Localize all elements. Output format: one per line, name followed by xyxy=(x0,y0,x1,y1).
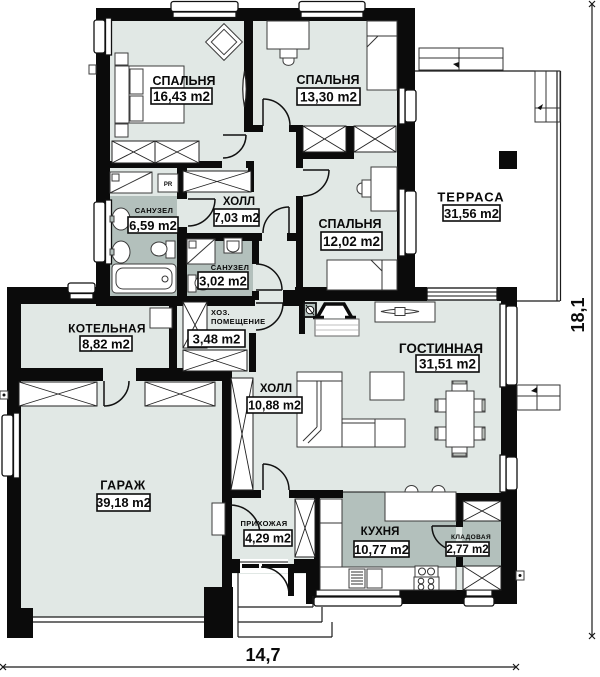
svg-text:КОТЕЛЬНАЯ: КОТЕЛЬНАЯ xyxy=(68,322,146,336)
svg-text:7,03 m2: 7,03 m2 xyxy=(214,211,260,225)
svg-text:13,30 m2: 13,30 m2 xyxy=(300,90,357,105)
svg-text:3,02 m2: 3,02 m2 xyxy=(199,274,247,289)
svg-text:12,02 m2: 12,02 m2 xyxy=(323,234,380,249)
svg-text:ХОЗ.: ХОЗ. xyxy=(211,308,230,317)
svg-text:ПОМЕЩЕНИЕ: ПОМЕЩЕНИЕ xyxy=(211,317,266,326)
svg-text:16,43 m2: 16,43 m2 xyxy=(153,89,210,104)
svg-text:10,77 m2: 10,77 m2 xyxy=(354,542,409,557)
svg-text:САНУЗЕЛ: САНУЗЕЛ xyxy=(211,263,250,272)
svg-text:10,88 m2: 10,88 m2 xyxy=(248,399,301,413)
svg-text:3,48 m2: 3,48 m2 xyxy=(193,332,241,347)
svg-text:8,82 m2: 8,82 m2 xyxy=(82,337,130,352)
svg-text:СПАЛЬНЯ: СПАЛЬНЯ xyxy=(319,217,382,231)
svg-text:КЛАДОВАЯ: КЛАДОВАЯ xyxy=(451,534,491,541)
svg-text:ПРИХОЖАЯ: ПРИХОЖАЯ xyxy=(240,519,287,528)
svg-text:31,51 m2: 31,51 m2 xyxy=(419,357,476,372)
svg-text:PR: PR xyxy=(164,182,173,188)
svg-text:14,7: 14,7 xyxy=(245,645,280,665)
svg-text:31,56 m2: 31,56 m2 xyxy=(444,206,499,221)
svg-text:2,77 m2: 2,77 m2 xyxy=(446,544,488,556)
svg-text:СПАЛЬНЯ: СПАЛЬНЯ xyxy=(153,74,216,88)
svg-text:СПАЛЬНЯ: СПАЛЬНЯ xyxy=(297,73,360,87)
svg-text:КУХНЯ: КУХНЯ xyxy=(361,526,400,538)
svg-text:39,18 m2: 39,18 m2 xyxy=(96,495,151,510)
svg-text:ТЕРРАСА: ТЕРРАСА xyxy=(437,190,504,205)
svg-text:18,1: 18,1 xyxy=(568,297,588,332)
svg-text:ГАРАЖ: ГАРАЖ xyxy=(100,479,146,493)
svg-text:САНУЗЕЛ: САНУЗЕЛ xyxy=(135,206,174,215)
svg-text:ГОСТИННАЯ: ГОСТИННАЯ xyxy=(399,341,483,356)
svg-text:4,29 m2: 4,29 m2 xyxy=(245,532,291,546)
svg-text:ХОЛЛ: ХОЛЛ xyxy=(260,383,292,395)
svg-text:6,59 m2: 6,59 m2 xyxy=(129,218,177,233)
svg-text:ХОЛЛ: ХОЛЛ xyxy=(223,196,255,208)
